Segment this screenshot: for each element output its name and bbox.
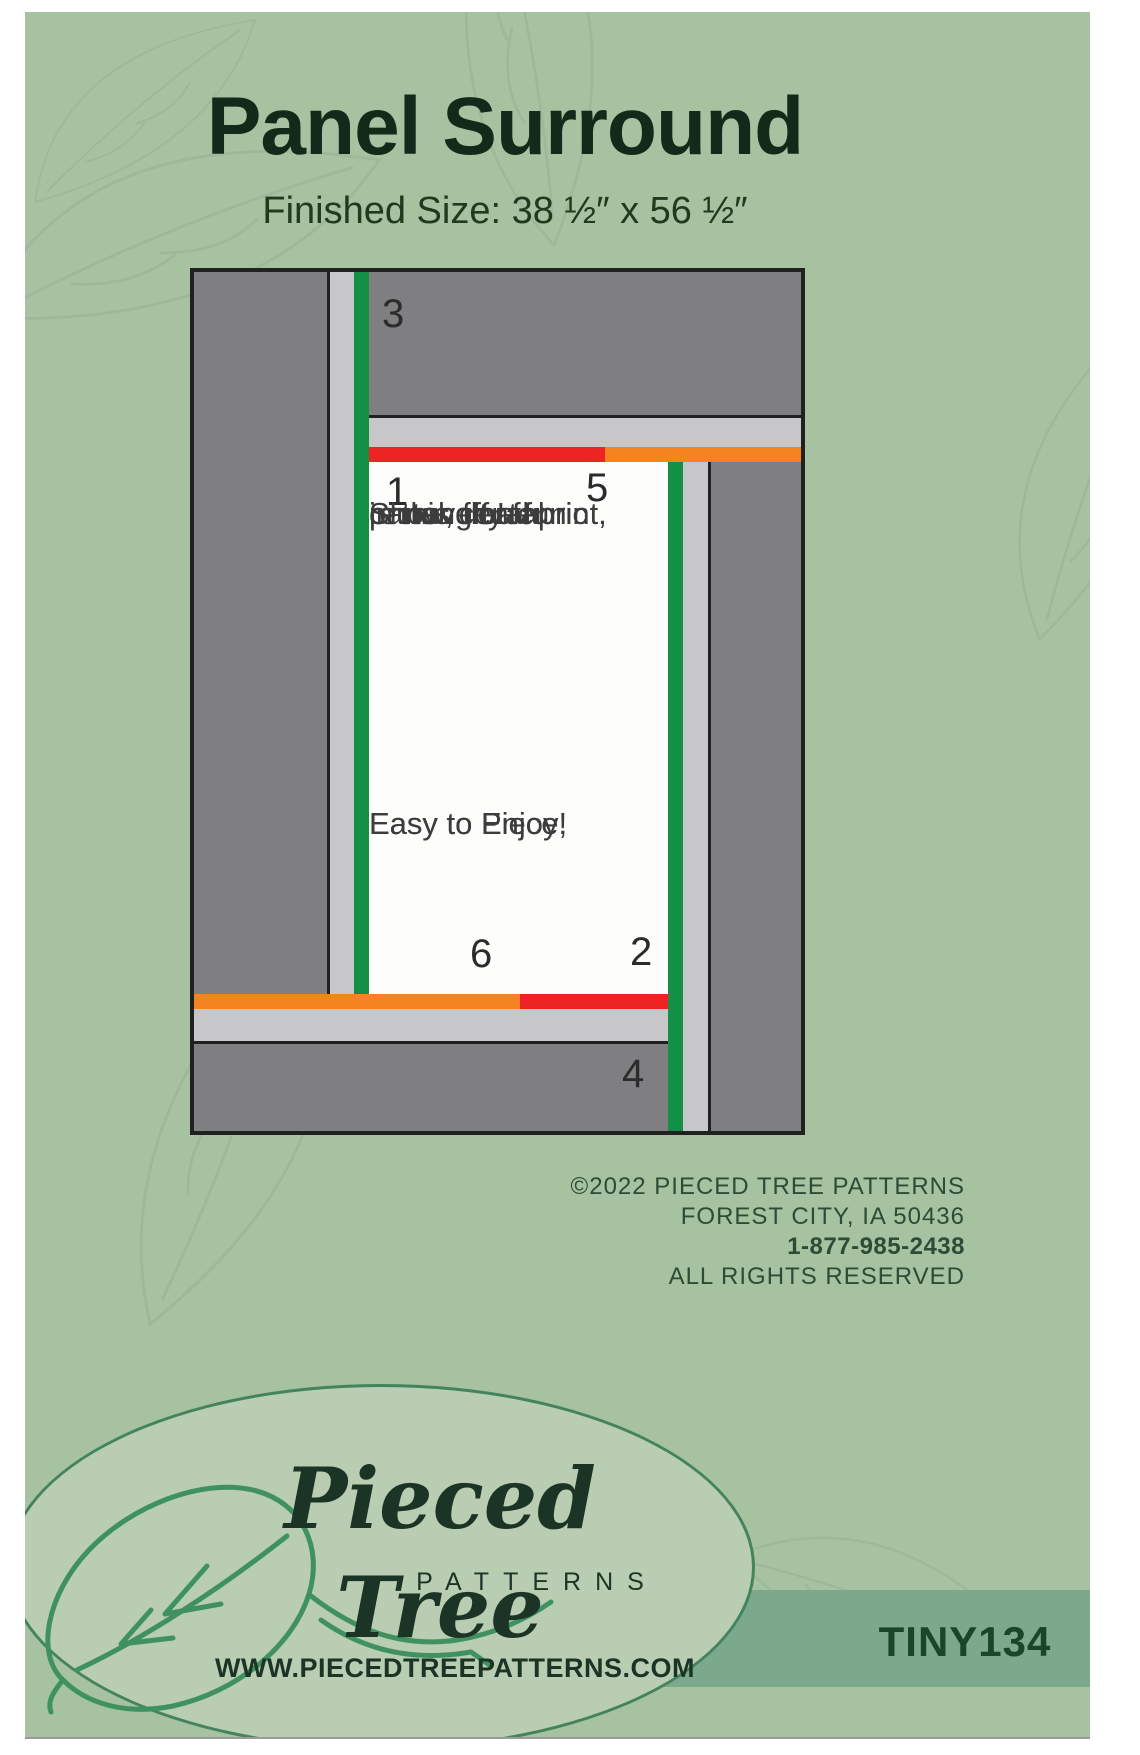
bottom-inner-gray-strip [194, 1009, 668, 1041]
label-border-2: 2 [630, 932, 652, 972]
green-cover: Panel Surround Finished Size: 38 ½″ x 56… [25, 12, 1090, 1737]
left-green-strip [354, 272, 369, 994]
logo-script-text: Pieced Tree [195, 1444, 685, 1662]
right-inner-gray-strip [683, 462, 708, 1131]
center-panel-rectangle [369, 462, 668, 994]
quilt-diagram: 3 1 5 6 2 4 Show off a fun panel, floral… [190, 268, 805, 1135]
pattern-cover-page: Panel Surround Finished Size: 38 ½″ x 56… [0, 0, 1140, 1755]
right-green-strip [668, 462, 683, 1131]
right-outer-border-strip [708, 462, 801, 1131]
left-inner-gray-strip [330, 272, 354, 994]
rights-line: ALL RIGHTS RESERVED [571, 1262, 965, 1292]
bottom-outer-border-strip [194, 1041, 668, 1131]
pattern-sku: TINY134 [860, 1618, 1070, 1666]
phone-number: 1-877-985-2438 [571, 1232, 965, 1262]
label-border-6: 6 [470, 934, 492, 974]
bottom-red-strip [520, 994, 668, 1009]
top-orange-strip [605, 447, 801, 462]
top-red-strip [369, 447, 605, 462]
copyright-line: ©2022 PIECED TREE PATTERNS [571, 1172, 965, 1202]
top-inner-gray-strip [369, 418, 801, 447]
logo-word-text: PATTERNS [380, 1568, 680, 1597]
tagline-line: Easy to Enjoy! [369, 802, 567, 846]
website-url: WWW.PIECEDTREEPATTERNS.COM [175, 1653, 735, 1684]
label-border-4: 4 [622, 1054, 644, 1094]
left-outer-border-strip [194, 272, 330, 994]
copyright-block: ©2022 PIECED TREE PATTERNS FOREST CITY, … [571, 1172, 965, 1292]
label-border-3: 3 [382, 294, 404, 334]
finished-size-subtitle: Finished Size: 38 ½″ x 56 ½″ [125, 190, 885, 233]
bottom-orange-strip [194, 994, 520, 1009]
description-line: rectangle! [369, 492, 505, 536]
top-outer-border-strip [369, 272, 801, 418]
page-title: Panel Surround [125, 80, 885, 174]
address-line: FOREST CITY, IA 50436 [571, 1202, 965, 1232]
